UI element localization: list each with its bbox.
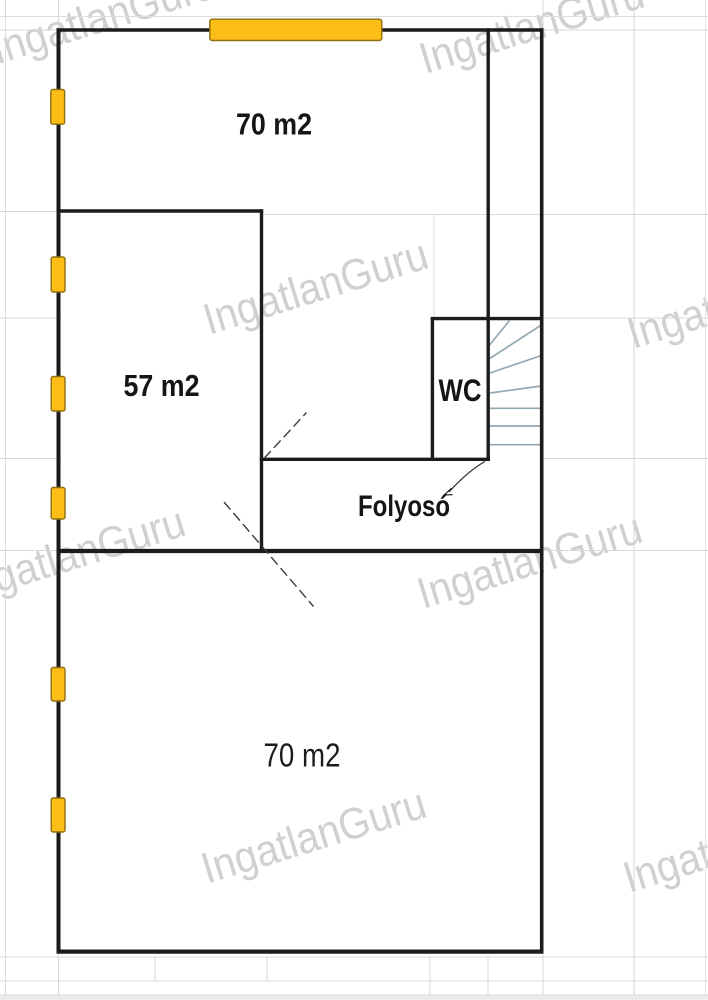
svg-text:70 m2: 70 m2 bbox=[264, 737, 341, 774]
svg-text:IngatlanGuru: IngatlanGuru bbox=[196, 779, 432, 894]
svg-text:IngatlanGuru: IngatlanGuru bbox=[0, 497, 191, 612]
svg-text:IngatlanGuru: IngatlanGuru bbox=[0, 0, 222, 74]
svg-text:IngatlanGuru: IngatlanGuru bbox=[198, 230, 434, 345]
svg-text:57 m2: 57 m2 bbox=[124, 368, 200, 403]
svg-text:Folyosó: Folyosó bbox=[358, 490, 450, 523]
svg-text:IngatlanGuru: IngatlanGuru bbox=[618, 788, 708, 903]
svg-text:IngatlanGuru: IngatlanGuru bbox=[414, 0, 650, 84]
svg-text:WC: WC bbox=[439, 372, 482, 408]
svg-text:IngatlanGuru: IngatlanGuru bbox=[622, 244, 708, 359]
svg-text:70 m2: 70 m2 bbox=[236, 107, 312, 142]
